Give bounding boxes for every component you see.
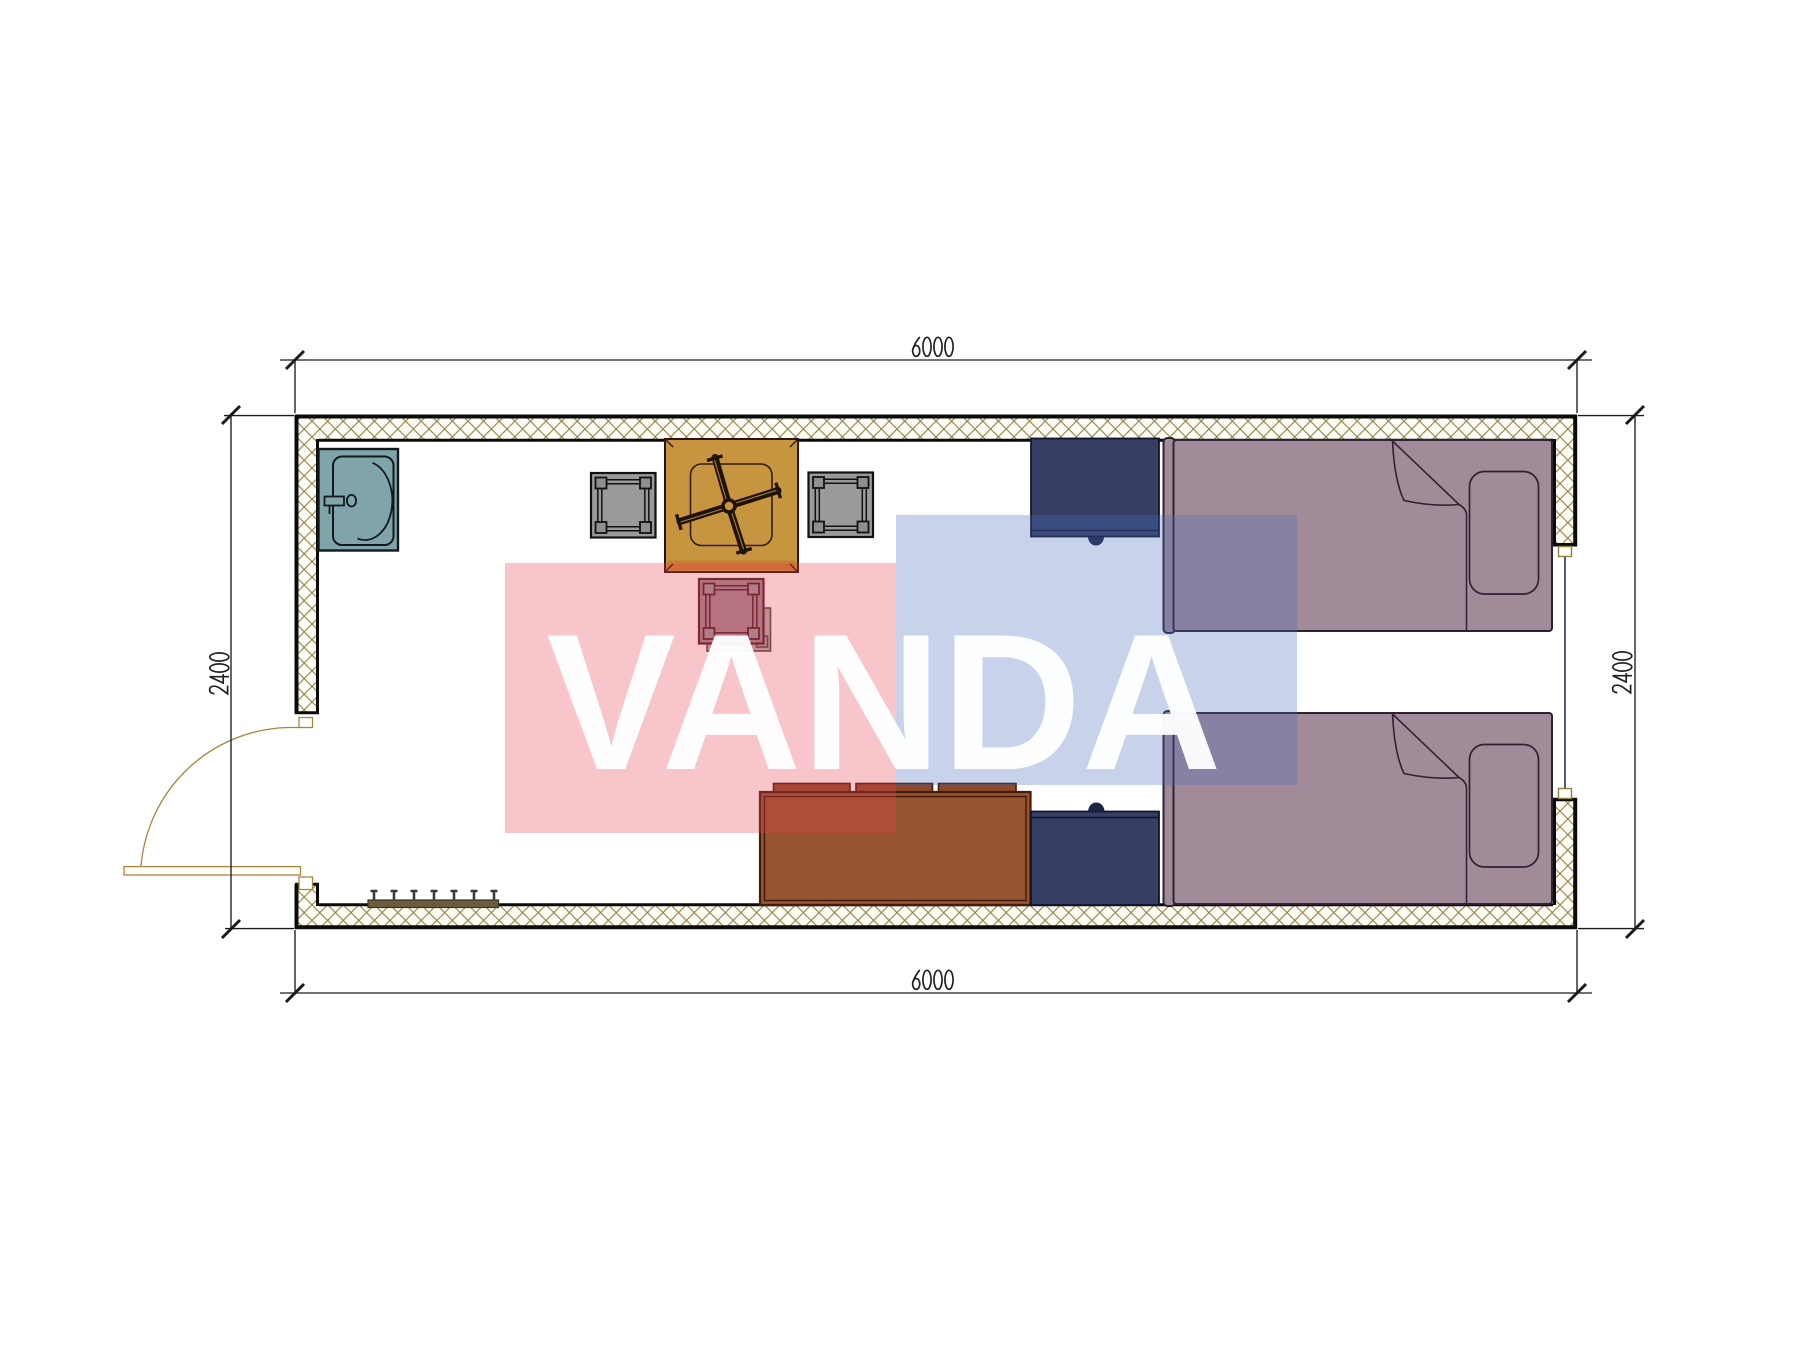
svg-text:VANDA: VANDA	[546, 594, 1221, 811]
